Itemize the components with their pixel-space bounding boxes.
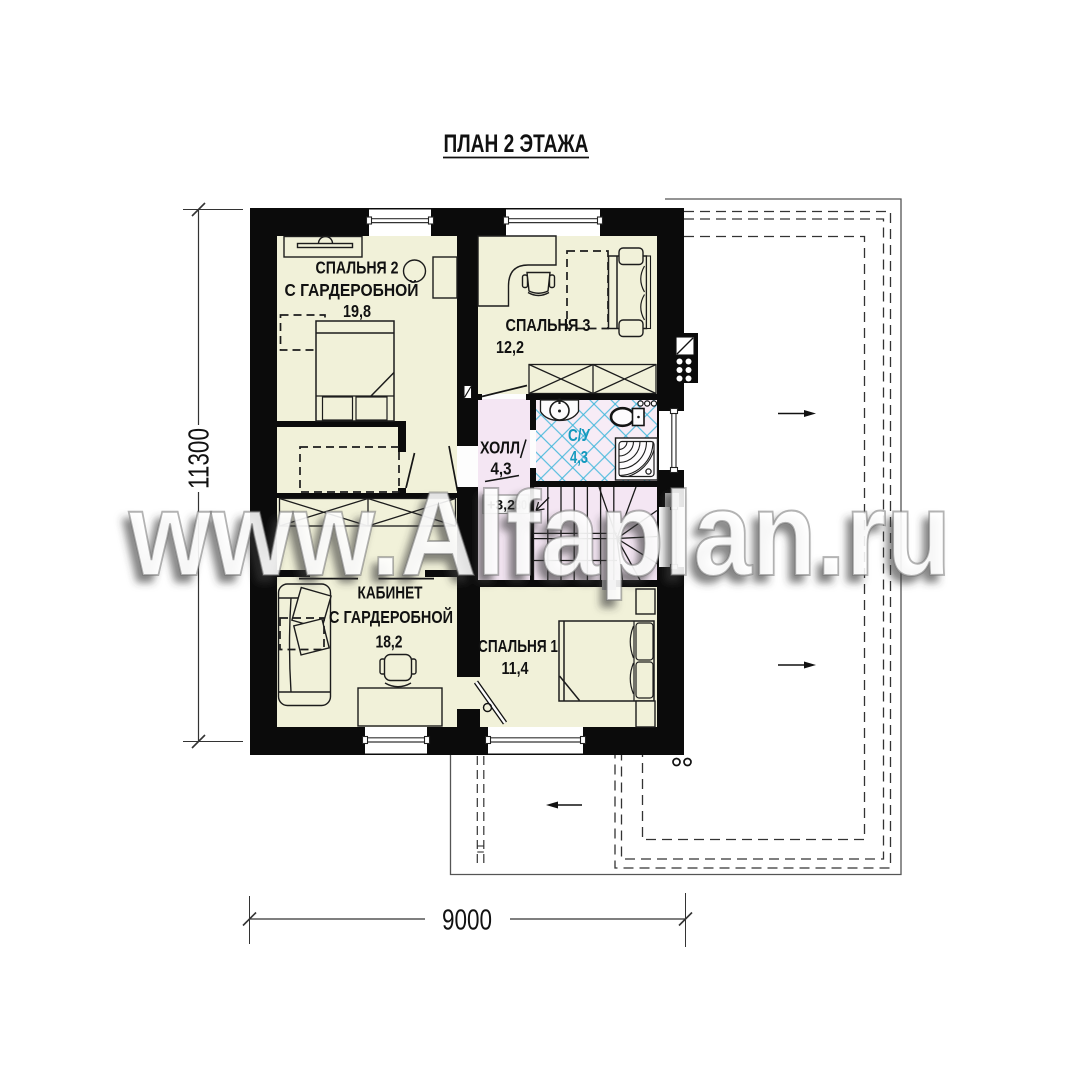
svg-text:11,4: 11,4 [502, 658, 529, 678]
svg-text:www.Alfaplan.ru: www.Alfaplan.ru [128, 467, 951, 601]
svg-text:12,2: 12,2 [496, 337, 524, 357]
svg-text:18,2: 18,2 [376, 632, 403, 652]
svg-text:С ГАРДЕРОБНОЙ: С ГАРДЕРОБНОЙ [285, 279, 419, 300]
svg-text:4,3: 4,3 [570, 447, 588, 467]
svg-text:СПАЛЬНЯ 2: СПАЛЬНЯ 2 [316, 258, 399, 278]
svg-text:СПАЛЬНЯ 1: СПАЛЬНЯ 1 [478, 636, 558, 656]
svg-text:С/У: С/У [568, 425, 591, 445]
svg-text:ХОЛЛ: ХОЛЛ [480, 438, 520, 458]
svg-text:ПЛАН 2 ЭТАЖА: ПЛАН 2 ЭТАЖА [444, 131, 589, 158]
svg-text:19,8: 19,8 [343, 301, 371, 321]
svg-text:С ГАРДЕРОБНОЙ: С ГАРДЕРОБНОЙ [329, 606, 453, 627]
svg-text:9000: 9000 [442, 905, 492, 937]
svg-text:СПАЛЬНЯ 3: СПАЛЬНЯ 3 [506, 315, 591, 335]
